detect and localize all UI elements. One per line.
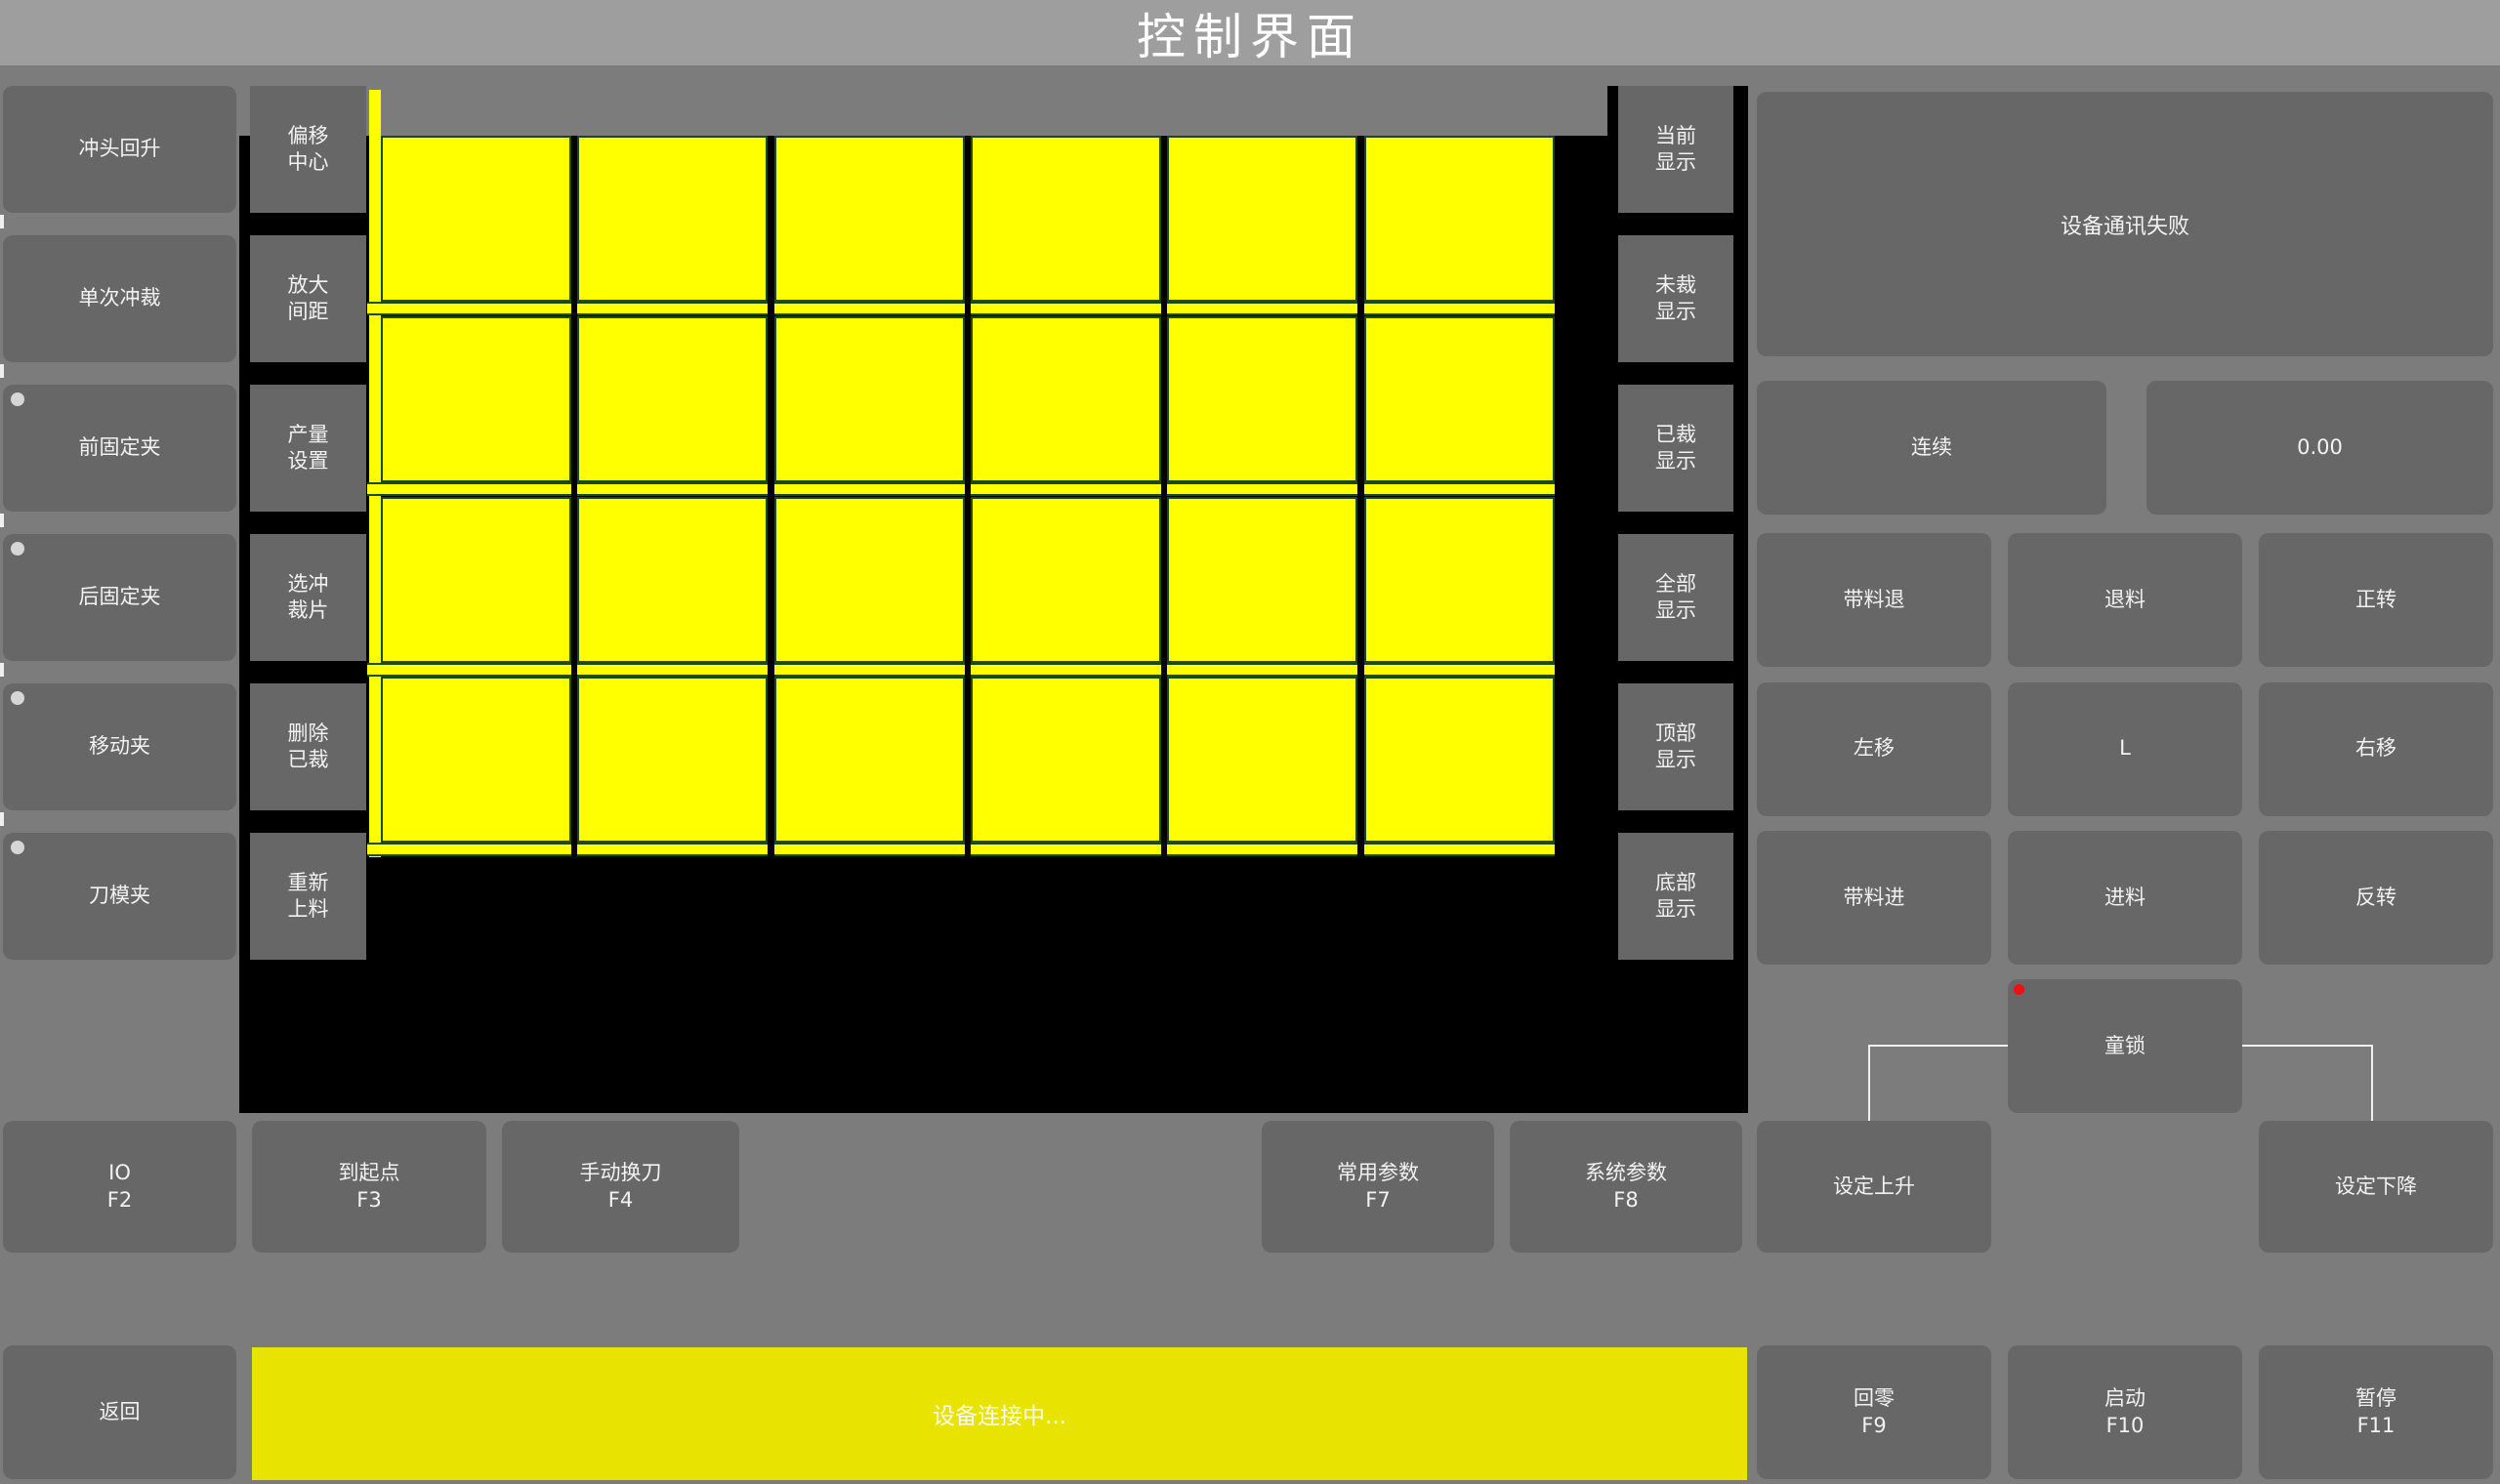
button-label: 显示 [1655,896,1696,923]
fkey-button-f7[interactable]: 常用参数F7 [1262,1121,1494,1253]
connection-status-text: 设备连接中... [933,1397,1066,1430]
device-status-box: 设备通讯失败 [1757,92,2493,356]
button-label: 前固定夹 [79,434,161,461]
child-lock-alarm-dot [2014,984,2024,995]
piece-cell[interactable] [971,497,1161,663]
jog-button-strip-back[interactable]: 带料退 [1757,533,1991,667]
waste-strip-segment [774,302,965,315]
waste-strip-segment [577,482,768,496]
jog-button-feed[interactable]: 进料 [2008,831,2242,965]
piece-cell[interactable] [1364,497,1555,663]
piece-cell[interactable] [1364,677,1555,843]
piece-cell[interactable] [774,497,965,663]
tool-button-2[interactable]: 放大间距 [250,235,366,362]
piece-cell[interactable] [1167,316,1357,482]
piece-cell[interactable] [1364,136,1555,302]
jog-button-forward-rotate[interactable]: 正转 [2259,533,2493,667]
value-display-text: 0.00 [2297,434,2343,461]
button-label: 重新 [288,870,329,896]
waste-strip-segment [1364,843,1555,856]
left-edge-tick [0,215,4,228]
piece-cell[interactable] [1167,497,1357,663]
tool-button-1[interactable]: 偏移中心 [250,86,366,213]
display-button-3[interactable]: 已裁显示 [1618,385,1733,512]
waste-strip-segment [381,482,571,496]
piece-cell[interactable] [577,316,768,482]
button-label: 偏移 [288,123,329,149]
piece-cell[interactable] [1167,677,1357,843]
button-label: 移动夹 [89,733,150,760]
waste-strip-segment [971,482,1161,496]
jog-button-move-left[interactable]: 左移 [1757,682,1991,816]
button-label: 返回 [100,1399,141,1425]
fkey-button-f2[interactable]: IOF2 [3,1121,236,1253]
button-label: 裁片 [288,598,329,624]
child-lock-button[interactable]: 童锁 [2008,979,2242,1113]
child-lock-label: 童锁 [2104,1033,2146,1059]
set-lower-button[interactable]: 设定下降 [2259,1121,2493,1253]
jog-button-unload[interactable]: 退料 [2008,533,2242,667]
waste-strip-segment [381,843,571,856]
bottom-key-f10[interactable]: 启动F10 [2008,1345,2242,1479]
value-display: 0.00 [2146,381,2493,515]
waste-strip-segment [1167,302,1357,315]
fkey-button-f3[interactable]: 到起点F3 [252,1121,486,1253]
button-label: 已裁 [288,747,329,773]
status-indicator-dot [11,841,24,854]
waste-strip-segment [774,482,965,496]
button-label: 放大 [288,272,329,299]
mode-continuous-label: 连续 [1911,434,1952,461]
button-label: 刀模夹 [89,883,150,909]
button-label: 显示 [1655,598,1696,624]
button-label: 删除 [288,721,329,747]
status-indicator-dot [11,542,24,556]
button-label: 到起点 [339,1160,400,1186]
waste-strip-segment [971,663,1161,677]
page-title: 控制界面 [1137,0,1363,68]
connection-status-bar: 设备连接中... [252,1347,1747,1480]
jog-button-reverse-rotate[interactable]: 反转 [2259,831,2493,965]
jog-button-strip-forward[interactable]: 带料进 [1757,831,1991,965]
control-screen: 控制界面 冲头回升单次冲裁前固定夹后固定夹移动夹刀模夹 偏移中心放大间距产量设置… [0,0,2500,1484]
display-button-4[interactable]: 全部显示 [1618,534,1733,661]
left-button-4[interactable]: 后固定夹 [3,534,236,661]
piece-cell[interactable] [1167,136,1357,302]
piece-grid [367,90,1561,861]
waste-strip-segment [1364,482,1555,496]
piece-cell[interactable] [381,677,571,843]
piece-cell[interactable] [971,316,1161,482]
button-label: 退料 [2104,587,2146,613]
waste-strip-end [367,302,381,315]
waste-strip-segment [1167,843,1357,856]
button-label: 右移 [2355,735,2396,762]
button-label: 带料进 [1844,885,1905,911]
button-label: 后固定夹 [79,584,161,610]
mode-continuous-button[interactable]: 连续 [1757,381,2106,515]
piece-cell[interactable] [381,136,571,302]
button-label: 设定下降 [2335,1174,2417,1200]
fkey-button-f4[interactable]: 手动换刀F4 [502,1121,739,1253]
button-label: F11 [2357,1413,2396,1439]
piece-cell[interactable] [774,677,965,843]
piece-cell[interactable] [1364,316,1555,482]
button-label: F2 [107,1187,132,1214]
button-label: F8 [1613,1187,1638,1214]
button-label: 常用参数 [1337,1160,1419,1186]
button-label: 显示 [1655,448,1696,474]
button-label: 带料退 [1844,587,1905,613]
button-label: 回零 [1854,1385,1895,1412]
childlock-connector-right [2371,1045,2373,1121]
button-label: F9 [1861,1413,1886,1439]
display-button-6[interactable]: 底部显示 [1618,833,1733,960]
button-label: 显示 [1655,149,1696,176]
status-indicator-dot [11,691,24,705]
back-button[interactable]: 返回 [3,1345,236,1479]
piece-cell[interactable] [774,316,965,482]
button-label: 显示 [1655,299,1696,325]
piece-cell[interactable] [971,677,1161,843]
waste-strip-segment [774,843,965,856]
device-status-text: 设备通讯失败 [2061,209,2189,240]
button-label: F10 [2106,1413,2145,1439]
left-button-6[interactable]: 刀模夹 [3,833,236,960]
button-label: F3 [356,1187,381,1214]
button-label: 中心 [288,149,329,176]
button-label: 当前 [1655,123,1696,149]
left-button-2[interactable]: 单次冲裁 [3,235,236,362]
button-label: 顶部 [1655,721,1696,747]
title-bar: 控制界面 [0,0,2500,65]
button-label: 已裁 [1655,422,1696,448]
piece-cell[interactable] [774,136,965,302]
button-label: 暂停 [2355,1385,2396,1412]
button-label: 设定上升 [1833,1174,1915,1200]
left-edge-tick [0,514,4,527]
left-edge-tick [0,364,4,378]
piece-cell[interactable] [577,677,768,843]
waste-strip-segment [381,302,571,315]
waste-strip-end [367,843,381,856]
tool-button-5[interactable]: 删除已裁 [250,683,366,810]
button-label: 进料 [2104,885,2146,911]
waste-strip-segment [971,843,1161,856]
piece-cell[interactable] [577,136,768,302]
left-button-3[interactable]: 前固定夹 [3,385,236,512]
jog-button-move-right[interactable]: 右移 [2259,682,2493,816]
button-label: L [2119,735,2131,762]
piece-cell[interactable] [971,136,1161,302]
waste-strip-segment [381,663,571,677]
tool-button-6[interactable]: 重新上料 [250,833,366,960]
button-label: 未裁 [1655,272,1696,299]
button-label: IO [108,1160,131,1186]
waste-strip-segment [1167,482,1357,496]
waste-strip-segment [1364,302,1555,315]
button-label: 手动换刀 [580,1160,662,1186]
tool-button-4[interactable]: 选冲裁片 [250,534,366,661]
button-label: 设置 [288,448,329,474]
button-label: 上料 [288,896,329,923]
waste-strip-segment [971,302,1161,315]
bottom-key-f11[interactable]: 暂停F11 [2259,1345,2493,1479]
display-button-2[interactable]: 未裁显示 [1618,235,1733,362]
button-label: 底部 [1655,870,1696,896]
button-label: 左移 [1854,735,1895,762]
button-label: 显示 [1655,747,1696,773]
bottom-key-f9[interactable]: 回零F9 [1757,1345,1991,1479]
waste-strip-end [367,482,381,496]
piece-cell[interactable] [381,497,571,663]
button-label: F7 [1365,1187,1390,1214]
display-button-5[interactable]: 顶部显示 [1618,683,1733,810]
waste-strip-segment [577,663,768,677]
tool-button-3[interactable]: 产量设置 [250,385,366,512]
display-button-1[interactable]: 当前显示 [1618,86,1733,213]
waste-strip-end [367,663,381,677]
piece-cell[interactable] [381,316,571,482]
jog-button-jog-l[interactable]: L [2008,682,2242,816]
childlock-connector-left [1868,1045,1870,1121]
button-label: 系统参数 [1585,1160,1667,1186]
button-label: 选冲 [288,571,329,598]
status-indicator-dot [11,392,24,406]
button-label: 冲头回升 [79,136,161,162]
fkey-button-f8[interactable]: 系统参数F8 [1510,1121,1742,1253]
button-label: 全部 [1655,571,1696,598]
left-button-1[interactable]: 冲头回升 [3,86,236,213]
set-rise-button[interactable]: 设定上升 [1757,1121,1991,1253]
button-label: 启动 [2104,1385,2146,1412]
button-label: 产量 [288,422,329,448]
left-edge-tick [0,812,4,826]
waste-strip-segment [774,663,965,677]
left-button-5[interactable]: 移动夹 [3,683,236,810]
button-label: 间距 [288,299,329,325]
button-label: 单次冲裁 [79,285,161,311]
waste-strip-segment [577,302,768,315]
material-left-strip [369,90,381,857]
button-label: 正转 [2355,587,2396,613]
waste-strip-segment [577,843,768,856]
button-label: F4 [608,1187,633,1214]
button-label: 反转 [2355,885,2396,911]
waste-strip-segment [1167,663,1357,677]
left-edge-tick [0,663,4,677]
piece-cell[interactable] [577,497,768,663]
waste-strip-segment [1364,663,1555,677]
